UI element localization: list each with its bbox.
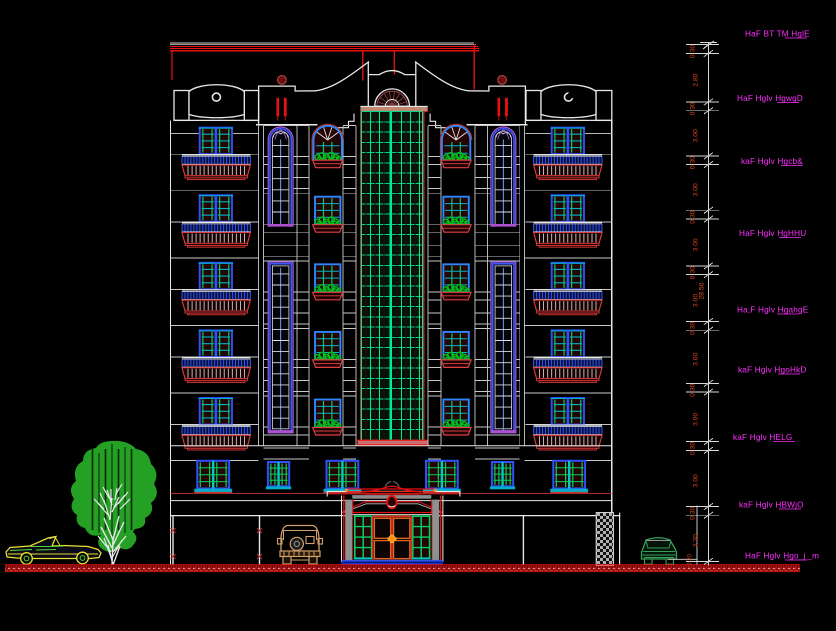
svg-text:0.30: 0.30 (690, 45, 697, 58)
svg-text:HaF Hglv Hgo_j _m: HaF Hglv Hgo_j _m (745, 552, 819, 561)
svg-text:kaF Hglv HgoHkD: kaF Hglv HgoHkD (738, 366, 807, 375)
svg-text:28.50: 28.50 (699, 282, 706, 299)
svg-text:3.00: 3.00 (693, 183, 700, 196)
svg-text:0.30: 0.30 (690, 266, 697, 279)
svg-text:0.30: 0.30 (690, 383, 697, 396)
svg-text:0.30: 0.30 (690, 102, 697, 115)
svg-text:3.00: 3.00 (693, 474, 700, 487)
svg-text:kaF Hglv Hgcb&: kaF Hglv Hgcb& (741, 157, 803, 166)
svg-text:3.00: 3.00 (693, 129, 700, 142)
svg-text:0.30: 0.30 (690, 442, 697, 455)
svg-text:2.80: 2.80 (693, 73, 700, 86)
svg-text:0.30: 0.30 (690, 321, 697, 334)
svg-text:0.20: 0.20 (688, 554, 694, 566)
svg-text:3.00: 3.00 (693, 352, 700, 365)
svg-text:HaF Hglv HgHHU: HaF Hglv HgHHU (739, 229, 806, 238)
svg-text:HaF BT TM HglE: HaF BT TM HglE (745, 30, 810, 39)
svg-text:2.20: 2.20 (693, 534, 700, 547)
svg-text:3.00: 3.00 (693, 412, 700, 425)
svg-text:0.30: 0.30 (690, 506, 697, 519)
svg-text:HaF Hglv HgwgD: HaF Hglv HgwgD (737, 94, 803, 103)
svg-text:0.30: 0.30 (690, 156, 697, 169)
svg-text:3.00: 3.00 (693, 238, 700, 251)
svg-text:Ha,F Hglv HgahgE: Ha,F Hglv HgahgE (737, 306, 809, 315)
svg-text:kaF Hglv HELG: kaF Hglv HELG (733, 433, 792, 442)
svg-text:kaF Hglv HBWjO: kaF Hglv HBWjO (739, 501, 804, 510)
svg-text:0.30: 0.30 (690, 210, 697, 223)
